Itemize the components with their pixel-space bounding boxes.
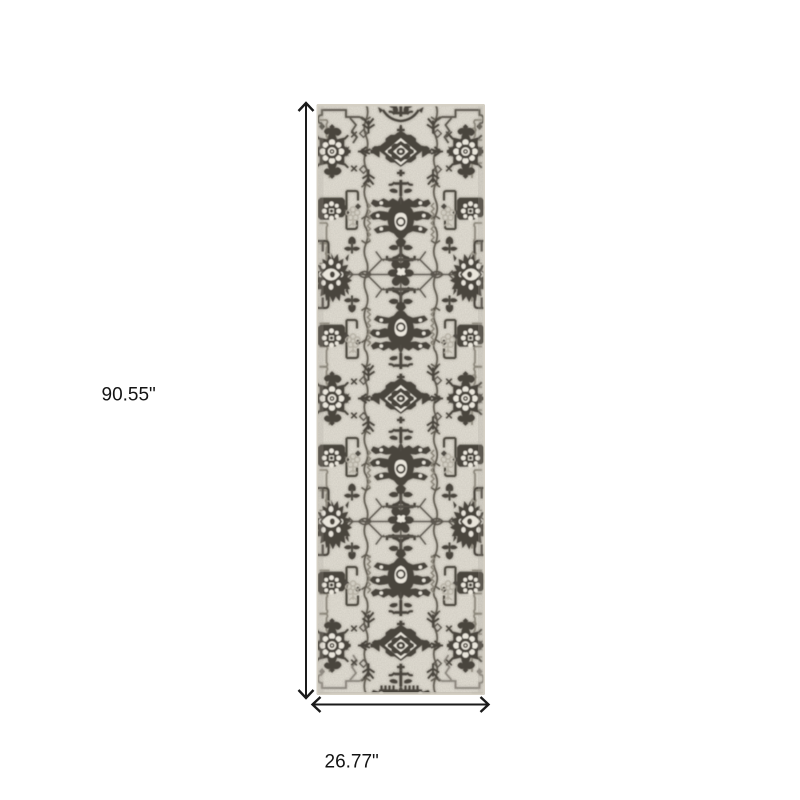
svg-text:90.55": 90.55" xyxy=(102,385,156,406)
svg-text:26.77": 26.77" xyxy=(325,752,379,773)
